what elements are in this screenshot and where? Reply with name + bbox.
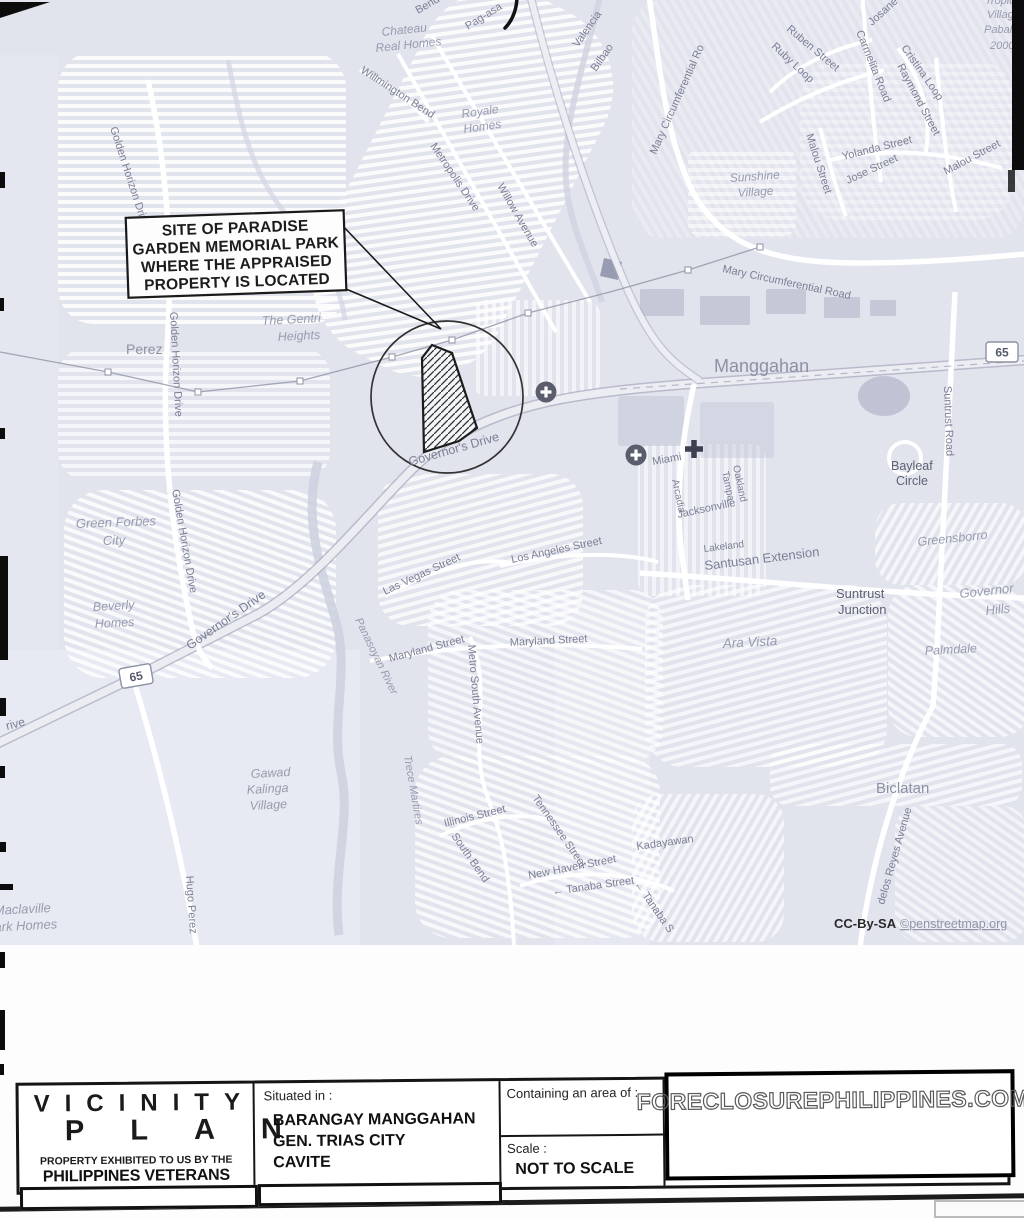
map-label: 2000 — [989, 40, 1015, 52]
map-label: Hills — [985, 600, 1011, 618]
situated-line: GEN. TRIAS CITY — [273, 1129, 499, 1152]
title-cell: VICINITY PLAN PROPERTY EXHIBITED TO US B… — [19, 1083, 256, 1191]
signature-strip — [258, 1182, 502, 1206]
scan-mark — [0, 952, 5, 968]
open-land — [0, 55, 58, 655]
callout-box: SITE OF PARADISE GARDEN MEMORIAL PARK WH… — [126, 210, 347, 298]
scan-mark — [0, 1064, 4, 1075]
map-label: Green Forbes — [76, 513, 157, 531]
map-label: CC-By-SA — [834, 916, 897, 931]
situated-cell: Situated in : BARANGAY MANGGAHAN GEN. TR… — [255, 1081, 502, 1189]
plan-title-line2: PLAN — [19, 1113, 253, 1148]
svg-text:65: 65 — [128, 668, 144, 684]
title-block: VICINITY PLAN PROPERTY EXHIBITED TO US B… — [15, 1073, 1010, 1195]
health-circle-icon — [626, 445, 647, 466]
map-label: Circle — [896, 474, 928, 488]
map-label: Kalinga — [246, 781, 288, 797]
situated-line: CAVITE — [273, 1150, 499, 1173]
map-label: Suntrust Road — [941, 386, 955, 457]
svg-text:65: 65 — [995, 346, 1009, 360]
map-label: Gawad — [250, 765, 291, 781]
health-circle-icon — [536, 382, 557, 403]
map-label: Beverly — [92, 598, 135, 614]
signature-strip — [20, 1185, 258, 1210]
scale-value: NOT TO SCALE — [515, 1160, 663, 1179]
situated-line: BARANGAY MANGGAHAN — [273, 1108, 499, 1131]
vicinity-map: BendPag-asaChateauReal HomesWillmington … — [0, 0, 1024, 945]
map-label: Maclaville — [0, 900, 51, 918]
map-label: Homes — [94, 615, 134, 631]
scan-mark — [0, 1010, 5, 1050]
map-canvas: BendPag-asaChateauReal HomesWillmington … — [0, 0, 1024, 945]
situated-label: Situated in : — [264, 1086, 499, 1103]
map-label: Village — [249, 797, 287, 813]
map-label: ©penstreetmap.org — [900, 917, 1007, 931]
map-label: Ara Vista — [721, 633, 778, 651]
map-label: Bayleaf — [891, 459, 933, 473]
map-label: Village — [737, 184, 774, 200]
map-label: City — [103, 532, 127, 548]
open-land — [0, 650, 360, 945]
route-shield: 65 — [986, 342, 1018, 362]
map-label: Biclatan — [876, 780, 929, 797]
map-label: Junction — [838, 602, 886, 617]
map-label: Heights — [277, 328, 320, 344]
watermark: FORECLOSUREPHILIPPINES.COM — [637, 1085, 1024, 1116]
map-label: Suntrust — [836, 586, 885, 601]
next-sheet-edge — [934, 1200, 1024, 1218]
map-label: Manggahan — [714, 356, 809, 376]
map-label: Palmdale — [924, 641, 977, 658]
scale-label: Scale : — [501, 1136, 663, 1157]
map-label: Perez — [126, 341, 163, 357]
exhibited-by-label: PROPERTY EXHIBITED TO US BY THE — [19, 1153, 253, 1167]
